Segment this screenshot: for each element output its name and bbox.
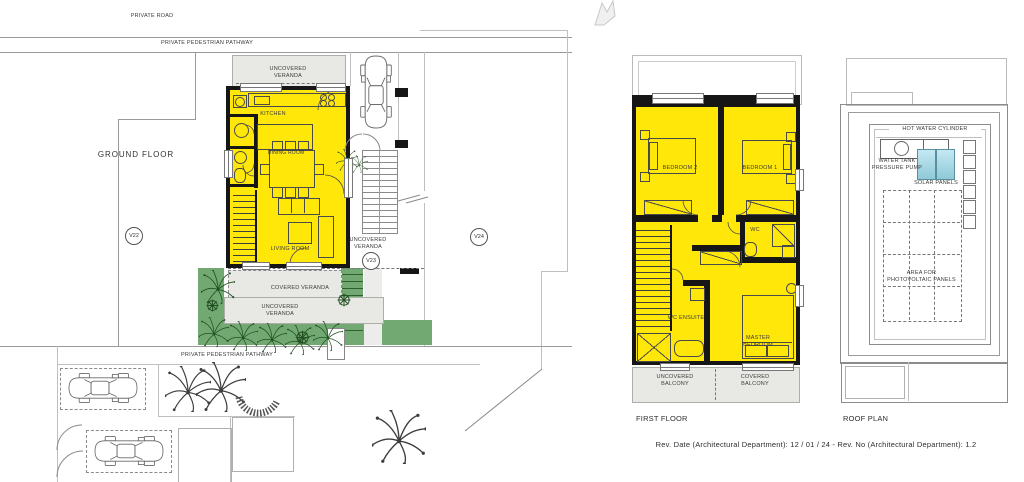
uncovered-veranda-bottom-label: UNCOVERED VERANDA [252, 304, 308, 318]
roof-balcony-inner [845, 366, 905, 399]
door-opening [698, 215, 712, 222]
roof-ladder-rung [963, 140, 976, 154]
wc-label: WC [743, 227, 767, 234]
nightstand [786, 132, 796, 142]
site-structure [178, 428, 232, 482]
wardrobe [746, 200, 794, 215]
bedroom1-label: BEDROOM 1 [729, 165, 791, 172]
photovoltaic-grid-line [883, 286, 960, 287]
balcony-door-opening [742, 363, 794, 371]
covered-veranda [228, 270, 342, 298]
photovoltaic-area-label: AREA FOR PHOTOVOLTAIC PANELS [886, 270, 957, 284]
door-opening [722, 215, 736, 222]
kitchen-window [240, 83, 282, 92]
pathway-top-label: PRIVATE PEDESTRIAN PATHWAY [148, 40, 266, 47]
water-tank-pressure-pump-label: WATER TANK PRESSURE PUMP [864, 158, 930, 172]
balcony-divider-line [715, 369, 716, 400]
entrance-door-arc [363, 134, 380, 151]
utility-appliance [235, 97, 245, 107]
side-window [795, 285, 804, 307]
dining-chair [285, 187, 296, 198]
solar-panel [936, 149, 955, 180]
veranda-door-opening [242, 262, 270, 270]
sofa-seat-line [291, 198, 292, 213]
photovoltaic-grid-line [909, 190, 910, 320]
dining-chair [272, 187, 283, 198]
veranda-door-opening [286, 262, 322, 270]
covered-veranda-label: COVERED VERANDA [255, 285, 345, 292]
pathway-top-line [0, 52, 572, 53]
interior-wall [230, 146, 254, 149]
dining-room-label: DINING ROOM [266, 150, 306, 156]
architectural-drawing-sheet: PRIVATE ROAD PRIVATE PEDESTRIAN PATHWAY … [0, 0, 1024, 482]
uncovered-veranda-top-label: UNCOVERED VERANDA [262, 66, 314, 80]
plot-marker-v22: V22 [125, 227, 143, 245]
site-line [158, 364, 159, 417]
stair-void [637, 333, 671, 362]
ground-floor-title: GROUND FLOOR [92, 150, 180, 160]
roof-ladder-rung [963, 155, 976, 169]
bathtub [674, 340, 704, 357]
tree [165, 366, 211, 412]
nightstand [640, 130, 650, 140]
site-line [57, 364, 480, 365]
patio-door-opening [344, 158, 353, 198]
dining-chair [298, 187, 309, 198]
hall-closet [700, 251, 742, 265]
break-line [398, 195, 428, 203]
roof-balcony-divider [908, 362, 909, 401]
coffee-table [288, 222, 312, 244]
interior-wall [230, 184, 254, 187]
private-road-line [0, 37, 572, 38]
wc-sink [782, 245, 795, 258]
photovoltaic-grid-line [934, 190, 935, 320]
hot-water-cylinder-label: HOT WATER CYLINDER [889, 126, 981, 133]
sheet-edge-line [541, 271, 542, 369]
photovoltaic-grid [883, 190, 962, 322]
plot-marker-v24: V24 [470, 228, 488, 246]
master-bedroom-label: MASTER BEDROOM [737, 335, 779, 349]
stove-burner [320, 100, 327, 107]
ensuite-sink [690, 288, 705, 301]
toilet [744, 242, 757, 257]
uncovered-balcony-label: UNCOVERED BALCONY [651, 374, 699, 388]
roof-ladder-rung [963, 215, 976, 229]
plot-boundary-line [118, 119, 196, 120]
revision-note: Rev. Date (Architectural Department): 12… [616, 440, 1016, 449]
pathway-bottom-line [0, 346, 572, 347]
wc-sink [234, 151, 247, 164]
kitchen-window [316, 83, 346, 92]
interior-staircase [233, 190, 257, 264]
wc-ensuite-label: WC ENSUITE [660, 315, 712, 322]
bedroom-partition-wall [718, 99, 724, 215]
stair-rail-line [379, 151, 380, 233]
site-line [57, 346, 58, 482]
sheet-edge-line [541, 271, 568, 272]
pressure-pump [894, 141, 909, 156]
roof-ladder-rung [963, 200, 976, 214]
north-arrow-icon [595, 1, 615, 25]
door-opening [672, 280, 683, 286]
kitchen-label: KITCHEN [243, 111, 303, 118]
gate-arc [57, 451, 83, 477]
outdoor-staircase [362, 150, 398, 234]
washing-machine [234, 123, 249, 138]
plot-boundary-line [195, 52, 196, 120]
bedroom2-window [652, 93, 704, 104]
bedroom2-label: BEDROOM 2 [650, 165, 710, 172]
bedroom1-window [756, 93, 794, 104]
sheet-edge-line [420, 30, 568, 31]
sheet-edge-line [567, 30, 568, 272]
roof-ladder-rung [963, 185, 976, 199]
tree [196, 362, 246, 412]
plot-marker-v23: V23 [362, 252, 380, 270]
wall-pier [395, 88, 408, 97]
solar-panels-label: SOLAR PANELS [906, 180, 966, 187]
interior-wall [636, 215, 796, 222]
side-window [224, 150, 233, 178]
kitchen-sink [254, 96, 270, 105]
living-room-label: LIVING ROOM [258, 246, 322, 253]
parking-bay [60, 368, 146, 410]
side-window [795, 169, 804, 191]
garden-gate [327, 328, 345, 360]
parked-car [358, 53, 394, 131]
photovoltaic-grid-line [883, 254, 960, 255]
roof-plan-title: ROOF PLAN [843, 414, 933, 423]
parking-bay [86, 430, 172, 473]
site-diagonal-line [465, 369, 542, 431]
sofa [278, 198, 320, 215]
nightstand [640, 172, 650, 182]
site-structure [232, 417, 294, 472]
photovoltaic-grid-line [883, 222, 960, 223]
covered-balcony-label: COVERED BALCONY [731, 374, 779, 388]
stove-burner [328, 100, 335, 107]
first-floor-title: FIRST FLOOR [636, 414, 726, 423]
balcony-door-opening [660, 363, 690, 371]
first-floor-house [632, 95, 800, 365]
pathway-bottom-label: PRIVATE PEDESTRIAN PATHWAY [178, 352, 276, 359]
wardrobe [644, 200, 692, 215]
neighbour-boundary-line [424, 52, 425, 191]
private-road-label: PRIVATE ROAD [104, 13, 200, 20]
toilet [234, 168, 246, 183]
equipment-line [876, 137, 982, 138]
gate-arc [57, 425, 82, 450]
uncovered-veranda-side-label: UNCOVERED VERANDA [345, 237, 391, 251]
shower [772, 224, 795, 247]
driveway-line [350, 52, 351, 86]
tree [372, 410, 426, 464]
wall-pier [395, 140, 408, 148]
sofa-seat-line [304, 198, 305, 213]
hedge-crescent [239, 397, 277, 413]
